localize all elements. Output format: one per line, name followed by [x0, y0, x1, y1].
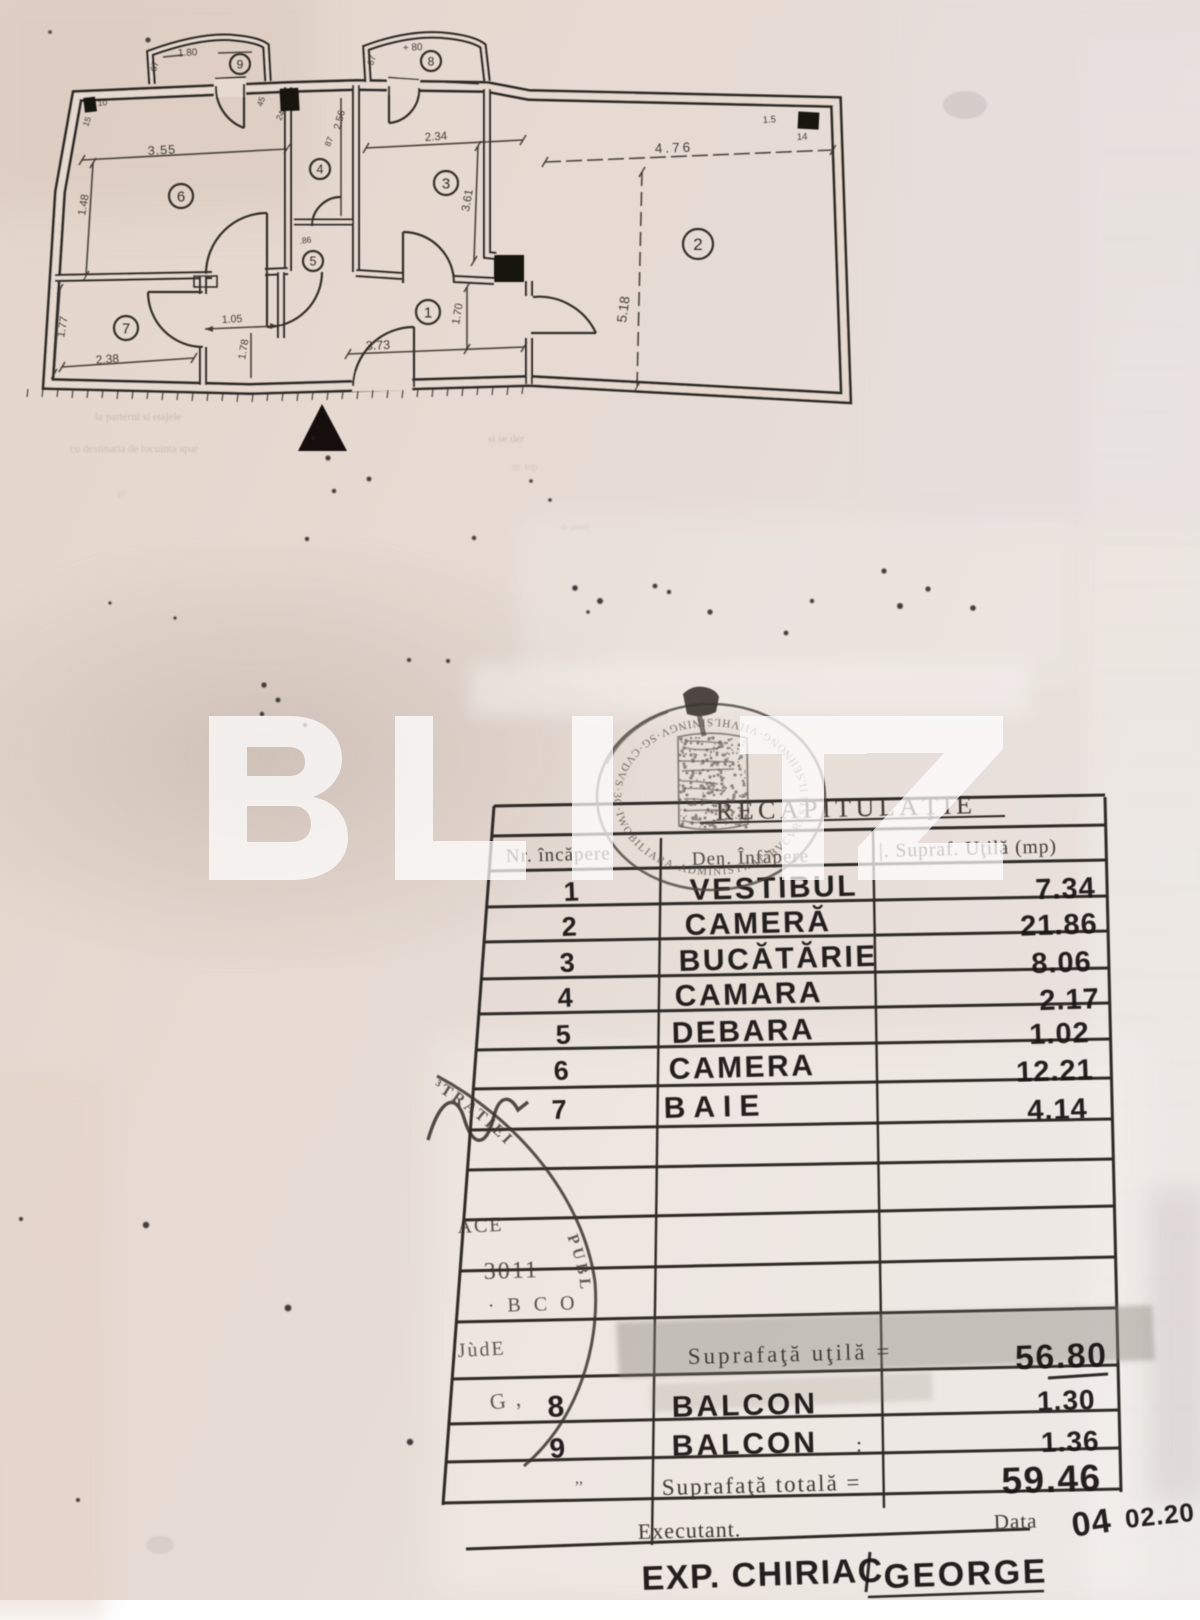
- svg-text:EXP. CHIRIAC: EXP. CHIRIAC: [641, 1552, 884, 1598]
- svg-text:8.06: 8.06: [1031, 946, 1093, 980]
- svg-text:7.34: 7.34: [1035, 872, 1097, 906]
- svg-text:3: 3: [442, 175, 450, 192]
- svg-text:JùdE: JùdE: [457, 1338, 506, 1362]
- svg-text:2.56: 2.56: [332, 109, 348, 131]
- svg-text:67: 67: [365, 54, 378, 67]
- svg-text:Suprafaţă totală =: Suprafaţă totală =: [661, 1470, 861, 1500]
- svg-text:14: 14: [797, 131, 808, 143]
- svg-text:GEORGE: GEORGE: [883, 1552, 1048, 1596]
- svg-text:4.76: 4.76: [655, 140, 694, 156]
- svg-text:1.5: 1.5: [762, 114, 776, 126]
- svg-text:3011: 3011: [483, 1257, 539, 1285]
- svg-text::: :: [856, 1432, 862, 1457]
- svg-text:de asem: de asem: [560, 522, 589, 532]
- svg-text:6: 6: [177, 188, 185, 205]
- svg-text:la parterul si etajele: la parterul si etajele: [95, 411, 182, 423]
- svg-text:87: 87: [322, 135, 335, 148]
- svg-text:Suprafaţă uţilă =: Suprafaţă uţilă =: [687, 1339, 892, 1369]
- svg-text:4.14: 4.14: [1027, 1093, 1089, 1127]
- svg-text:9: 9: [237, 57, 244, 71]
- svg-text:BAIE: BAIE: [663, 1089, 768, 1125]
- svg-text:.86: .86: [299, 234, 312, 246]
- svg-text:1: 1: [424, 304, 432, 321]
- svg-text:5: 5: [310, 255, 317, 269]
- svg-text:BALCON: BALCON: [671, 1387, 818, 1424]
- svg-text:1.77: 1.77: [55, 315, 71, 338]
- svg-text:1.30: 1.30: [1036, 1384, 1096, 1417]
- svg-text:DEBARA: DEBARA: [671, 1013, 815, 1050]
- svg-text:10: 10: [97, 97, 108, 108]
- svg-text:7: 7: [122, 320, 130, 337]
- svg-text:5: 5: [555, 1019, 571, 1050]
- svg-text:nr. top: nr. top: [512, 462, 538, 473]
- svg-text:56.80: 56.80: [1014, 1336, 1108, 1377]
- svg-text:3.61: 3.61: [460, 188, 476, 212]
- svg-text:1.78: 1.78: [236, 338, 251, 360]
- svg-text:2.17: 2.17: [1039, 983, 1101, 1017]
- svg-text:02.20: 02.20: [1123, 1497, 1196, 1534]
- svg-text:BALCON: BALCON: [671, 1426, 818, 1463]
- svg-text:67: 67: [148, 60, 160, 72]
- svg-text:8: 8: [428, 54, 435, 68]
- svg-text:CAMARA: CAMARA: [674, 976, 823, 1013]
- svg-text:ACE: ACE: [457, 1214, 504, 1238]
- svg-text:1: 1: [563, 876, 579, 907]
- svg-text:1.05: 1.05: [222, 313, 243, 326]
- svg-text:Executant.: Executant.: [637, 1516, 741, 1544]
- svg-text:2: 2: [561, 911, 577, 942]
- svg-text:7: 7: [551, 1094, 567, 1125]
- svg-text:15: 15: [80, 115, 93, 128]
- svg-text:45: 45: [254, 95, 267, 108]
- svg-text:3: 3: [559, 947, 575, 978]
- svg-text:Data: Data: [993, 1508, 1037, 1534]
- svg-text:12.21: 12.21: [1016, 1054, 1095, 1089]
- svg-text:1.80: 1.80: [178, 47, 198, 59]
- svg-text:2: 2: [693, 235, 702, 254]
- svg-text:cu destinatia de locuinta apar: cu destinatia de locuinta apar: [70, 443, 199, 455]
- svg-text:21.86: 21.86: [1020, 908, 1099, 943]
- svg-text:,,: ,,: [575, 1470, 583, 1487]
- svg-text:3.73: 3.73: [365, 338, 390, 353]
- svg-text:1.70: 1.70: [450, 302, 466, 325]
- svg-text:BUCĂTĂRIE: BUCĂTĂRIE: [678, 939, 878, 978]
- svg-text:2.34: 2.34: [424, 130, 448, 144]
- svg-text:5.18: 5.18: [614, 295, 633, 323]
- svg-text:si se der: si se der: [488, 433, 524, 445]
- svg-text:pr: pr: [118, 488, 126, 498]
- svg-text:3.55: 3.55: [147, 143, 176, 158]
- svg-text:CAMERA: CAMERA: [668, 1049, 815, 1086]
- svg-text:CAMERĂ: CAMERĂ: [684, 904, 832, 942]
- svg-text:59.46: 59.46: [1001, 1457, 1102, 1501]
- svg-text:· B C O: · B C O: [487, 1292, 579, 1317]
- svg-text:04: 04: [1069, 1502, 1114, 1545]
- svg-text:4: 4: [557, 982, 573, 1013]
- svg-text:4: 4: [317, 163, 324, 177]
- svg-text:1.36: 1.36: [1041, 1425, 1101, 1458]
- svg-text:G ,: G ,: [488, 1385, 524, 1414]
- svg-text:1.02: 1.02: [1029, 1017, 1091, 1051]
- svg-text:6: 6: [553, 1055, 569, 1086]
- svg-text:2.38: 2.38: [95, 351, 120, 367]
- svg-text:+ 80: + 80: [403, 42, 424, 54]
- svg-text:PUBL: PUBL: [563, 1232, 593, 1294]
